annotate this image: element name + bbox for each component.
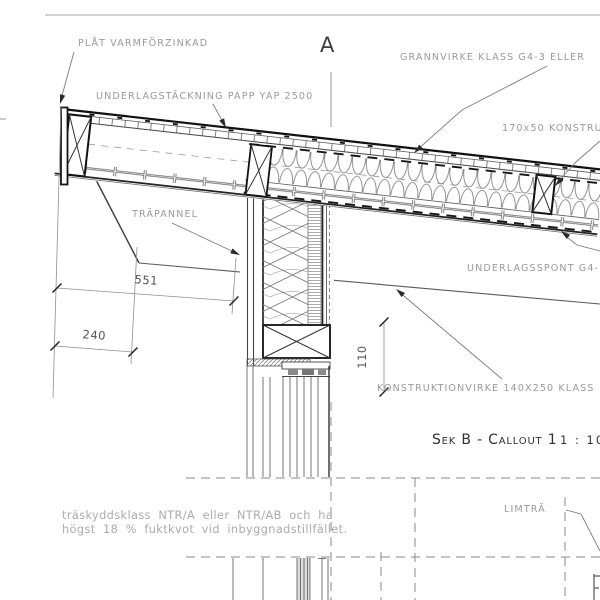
label-plat-varmforzinkad: PLÅT VARMFÖRZINKAD <box>78 36 208 49</box>
metal-flashing-plate <box>61 108 68 185</box>
wall-batten-hatch <box>308 190 321 325</box>
cad-drawing-canvas: 551 240 110 <box>0 0 600 600</box>
label-konstruktionvirke-140x250: KONSTRUKTIONVIRKE 140X250 KLASS <box>377 383 595 394</box>
note-line-1: träskyddsklass NTR/A eller NTR/AB och ha <box>62 509 333 522</box>
label-170x50-konstruktionsvirke: 170x50 KONSTRU <box>502 123 600 134</box>
wall-insulation <box>263 190 308 325</box>
window-frame-verticals-lower <box>233 558 328 600</box>
lintel-block <box>263 325 330 358</box>
arrowhead <box>230 249 241 258</box>
beam-edge-partial <box>594 574 600 600</box>
view-title: Sek B - Callout 1 <box>432 432 557 448</box>
label-underlagsspont: UNDERLAGSSPONT G4- <box>467 263 599 274</box>
dim-240-text: 240 <box>82 327 106 343</box>
note-line-2: högst 18 % fuktkvot vid inbyggnadstillfä… <box>62 523 347 536</box>
section-detail-drawing: 551 240 110 <box>0 0 600 600</box>
wall-top-blocking <box>246 144 272 197</box>
window-frame-verticals-upper <box>247 366 329 477</box>
label-limtra: LIMTRÄ <box>504 502 546 515</box>
label-grannvirke: GRANNVIRKE KLASS G4-3 ELLER <box>400 52 585 63</box>
dim-110-text: 110 <box>355 345 369 368</box>
dim-551-text: 551 <box>134 272 158 288</box>
section-marker-a: A <box>320 33 335 57</box>
arrowhead <box>57 94 65 105</box>
label-trapannel: TRÄPANNEL <box>131 207 198 220</box>
dimension-240: 240 <box>51 327 138 356</box>
rafter-block <box>532 175 555 214</box>
view-scale: 1 : 10 <box>560 433 600 447</box>
label-underlagstackning: UNDERLAGSTÄCKNING PAPP YAP 2500 <box>96 89 313 102</box>
